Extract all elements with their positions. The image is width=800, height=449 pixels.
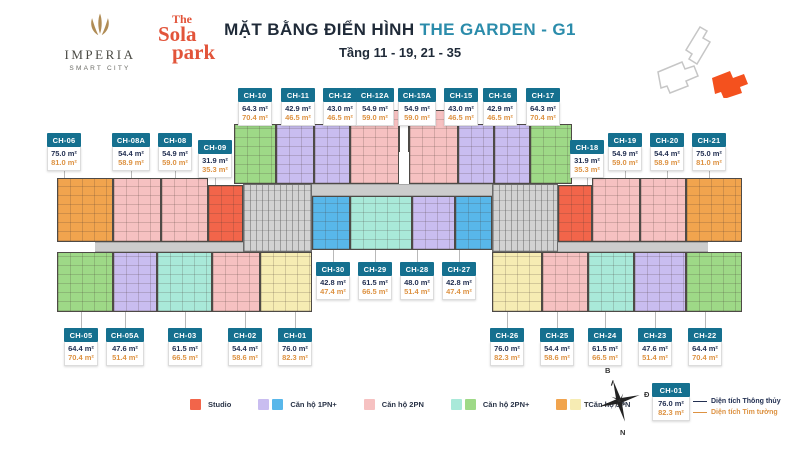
net-label: Diện tích Thông thủy — [711, 398, 781, 405]
compass: B Đ N T — [588, 368, 650, 440]
unit-areas-CH-22: 64.4 m²70.4 m² — [688, 342, 722, 367]
unit-gross-area: 82.3 m² — [491, 353, 523, 363]
unit-areas-CH-09: 31.9 m²35.3 m² — [198, 154, 232, 179]
legend-label: Căn hộ 2PN+ — [483, 400, 529, 409]
unit-code-CH-12A: CH-12A — [356, 88, 394, 102]
unit-code-CH-09: CH-09 — [198, 140, 232, 154]
unit-net-area: 42.8 m² — [317, 278, 349, 288]
unit-net-area: 64.3 m² — [239, 104, 271, 114]
leader-line-CH-03 — [185, 312, 186, 328]
unit-label-CH-30: CH-3042.8 m²47.4 m² — [316, 262, 350, 300]
gross-label: Diện tích Tim tường — [711, 409, 778, 416]
unit-areas-CH-03: 61.5 m²66.5 m² — [168, 342, 202, 367]
unit-net-area: 42.9 m² — [282, 104, 314, 114]
unit-gross-area: 58.6 m² — [229, 353, 261, 363]
unit-gross-area: 46.5 m² — [282, 113, 314, 123]
unit-areas-CH-28: 48.0 m²51.4 m² — [400, 276, 434, 301]
site-building-highlight — [712, 71, 748, 98]
gross-connector-line — [693, 412, 707, 413]
legend-swatch-2pn_pink — [364, 399, 375, 410]
unit-areas-CH-08: 54.9 m²59.0 m² — [158, 147, 192, 172]
leader-line-CH-05 — [81, 312, 82, 328]
unit-areas-CH-08A: 54.4 m²58.9 m² — [112, 147, 150, 172]
unit-CH-29 — [350, 196, 412, 250]
title-plain: MẶT BẰNG ĐIỂN HÌNH — [224, 20, 414, 39]
unit-net-area: 64.4 m² — [65, 344, 97, 354]
unit-areas-CH-26: 76.0 m²82.3 m² — [490, 342, 524, 367]
unit-CH-16 — [494, 124, 530, 184]
unit-gross-area: 59.0 m² — [159, 158, 191, 168]
unit-code-CH-28: CH-28 — [400, 262, 434, 276]
unit-label-CH-23: CH-2347.6 m²51.4 m² — [638, 328, 672, 366]
unit-gross-area: 51.4 m² — [639, 353, 671, 363]
unit-code-CH-29: CH-29 — [358, 262, 392, 276]
unit-areas-CH-24: 61.5 m²66.5 m² — [588, 342, 622, 367]
compass-south-label: N — [620, 428, 625, 437]
unit-CH-28 — [412, 196, 455, 250]
unit-label-CH-17: CH-1764.3 m²70.4 m² — [526, 88, 560, 126]
unit-net-area: 64.3 m² — [527, 104, 559, 114]
legend-swatches — [190, 399, 201, 410]
unit-CH-01 — [260, 252, 312, 312]
unit-code-CH-18: CH-18 — [570, 140, 604, 154]
area-key: CH-01 76.0 m² 82.3 m² Diện tích Thông th… — [652, 383, 781, 421]
legend-swatch-studio — [190, 399, 201, 410]
unit-label-CH-08: CH-0854.9 m²59.0 m² — [158, 133, 192, 171]
unit-areas-CH-23: 47.6 m²51.4 m² — [638, 342, 672, 367]
unit-areas-CH-06: 75.0 m²81.0 m² — [47, 147, 81, 172]
legend-swatch-2pnp_cyan — [451, 399, 462, 410]
unit-code-CH-10: CH-10 — [238, 88, 272, 102]
unit-net-area: 42.9 m² — [484, 104, 516, 114]
unit-gross-area: 70.4 m² — [527, 113, 559, 123]
leader-line-CH-29 — [375, 250, 376, 262]
unit-gross-area: 70.4 m² — [689, 353, 721, 363]
unit-net-area: 54.4 m² — [541, 344, 573, 354]
unit-net-area: 47.6 m² — [639, 344, 671, 354]
unit-gross-area: 35.3 m² — [571, 165, 603, 175]
unit-label-CH-15A: CH-15A54.9 m²59.0 m² — [398, 88, 436, 126]
unit-net-area: 61.5 m² — [169, 344, 201, 354]
unit-code-CH-21: CH-21 — [692, 133, 726, 147]
unit-code-CH-08A: CH-08A — [112, 133, 150, 147]
unit-gross-area: 82.3 m² — [279, 353, 311, 363]
unit-label-CH-09: CH-0931.9 m²35.3 m² — [198, 140, 232, 178]
unit-label-CH-19: CH-1954.9 m²59.0 m² — [608, 133, 642, 171]
unit-CH-10 — [234, 124, 276, 184]
floor-plan-page: IMPERIA SMART CITY The Sola park MẶT BẰN… — [0, 0, 800, 449]
unit-net-area: 54.4 m² — [113, 149, 149, 159]
unit-CH-19 — [592, 178, 640, 242]
legend-swatches — [364, 399, 375, 410]
unit-CH-25 — [542, 252, 588, 312]
unit-code-CH-20: CH-20 — [650, 133, 684, 147]
leader-line-CH-27 — [459, 250, 460, 262]
area-key-net-value: 76.0 m² — [653, 399, 689, 409]
unit-label-CH-05: CH-0564.4 m²70.4 m² — [64, 328, 98, 366]
unit-gross-area: 81.0 m² — [48, 158, 80, 168]
leader-line-CH-28 — [417, 250, 418, 262]
legend-swatch-1pn_blue — [272, 399, 283, 410]
unit-areas-CH-05A: 47.6 m²51.4 m² — [106, 342, 144, 367]
unit-CH-06 — [57, 178, 113, 242]
unit-areas-CH-05: 64.4 m²70.4 m² — [64, 342, 98, 367]
unit-gross-area: 51.4 m² — [107, 353, 143, 363]
legend-item-0: Studio — [190, 399, 231, 410]
unit-code-CH-15: CH-15 — [444, 88, 478, 102]
unit-label-CH-10: CH-1064.3 m²70.4 m² — [238, 88, 272, 126]
unit-code-CH-08: CH-08 — [158, 133, 192, 147]
unit-code-CH-30: CH-30 — [316, 262, 350, 276]
unit-net-area: 76.0 m² — [279, 344, 311, 354]
site-map — [648, 6, 778, 98]
unit-net-area: 54.9 m² — [399, 104, 435, 114]
compass-west-label: T — [584, 400, 589, 409]
unit-code-CH-25: CH-25 — [540, 328, 574, 342]
unit-areas-CH-20: 54.4 m²58.9 m² — [650, 147, 684, 172]
unit-areas-CH-15A: 54.9 m²59.0 m² — [398, 102, 436, 127]
unit-code-CH-17: CH-17 — [526, 88, 560, 102]
imperia-logo-subtext: SMART CITY — [52, 65, 148, 72]
legend-label: Studio — [208, 400, 231, 409]
unit-label-CH-27: CH-2742.8 m²47.4 m² — [442, 262, 476, 300]
unit-gross-area: 59.0 m² — [357, 113, 393, 123]
unit-net-area: 31.9 m² — [199, 156, 231, 166]
leader-line-CH-02 — [245, 312, 246, 328]
unit-net-area: 43.0 m² — [324, 104, 356, 114]
legend-swatches — [556, 399, 581, 410]
unit-label-CH-12: CH-1243.0 m²46.5 m² — [323, 88, 357, 126]
unit-code-CH-27: CH-27 — [442, 262, 476, 276]
legend-swatch-3pn_orange — [556, 399, 567, 410]
legend-swatch-2pnp_green — [465, 399, 476, 410]
unit-CH-11 — [276, 124, 314, 184]
unit-areas-CH-27: 42.8 m²47.4 m² — [442, 276, 476, 301]
area-key-gross-row: Diện tích Tim tường — [690, 407, 781, 418]
unit-label-CH-16: CH-1642.9 m²46.5 m² — [483, 88, 517, 126]
unit-net-area: 75.0 m² — [693, 149, 725, 159]
unit-code-CH-06: CH-06 — [47, 133, 81, 147]
page-subtitle: Tầng 11 - 19, 21 - 35 — [210, 45, 590, 60]
unit-label-CH-29: CH-2961.5 m²66.5 m² — [358, 262, 392, 300]
area-key-net-row: Diện tích Thông thủy — [690, 396, 781, 407]
unit-code-CH-02: CH-02 — [228, 328, 262, 342]
unit-net-area: 54.4 m² — [651, 149, 683, 159]
unit-code-CH-01: CH-01 — [278, 328, 312, 342]
unit-net-area: 42.8 m² — [443, 278, 475, 288]
unit-gross-area: 46.5 m² — [324, 113, 356, 123]
leader-line-CH-05A — [125, 312, 126, 328]
unit-areas-CH-12A: 54.9 m²59.0 m² — [356, 102, 394, 127]
leader-line-CH-26 — [507, 312, 508, 328]
unit-net-area: 76.0 m² — [491, 344, 523, 354]
unit-net-area: 48.0 m² — [401, 278, 433, 288]
legend-swatches — [451, 399, 476, 410]
unit-CH-20 — [640, 178, 686, 242]
unit-gross-area: 66.5 m² — [359, 287, 391, 297]
unit-gross-area: 59.0 m² — [609, 158, 641, 168]
leader-line-CH-30 — [333, 250, 334, 262]
unit-areas-CH-17: 64.3 m²70.4 m² — [526, 102, 560, 127]
legend-item-2: Căn hộ 2PN — [364, 399, 424, 410]
compass-rose-icon — [591, 373, 648, 430]
legend-swatch-1pn_purple — [258, 399, 269, 410]
imperia-logo: IMPERIA SMART CITY — [52, 12, 148, 72]
leader-line-CH-01 — [295, 312, 296, 328]
leader-line-CH-23 — [655, 312, 656, 328]
unit-gross-area: 58.9 m² — [113, 158, 149, 168]
unit-areas-CH-25: 54.4 m²58.6 m² — [540, 342, 574, 367]
unit-gross-area: 59.0 m² — [399, 113, 435, 123]
legend-swatch-3pn_yellow — [570, 399, 581, 410]
unit-gross-area: 70.4 m² — [239, 113, 271, 123]
legend-label: Căn hộ 1PN+ — [290, 400, 336, 409]
unit-areas-CH-16: 42.9 m²46.5 m² — [483, 102, 517, 127]
leader-line-CH-24 — [605, 312, 606, 328]
legend-item-3: Căn hộ 2PN+ — [451, 399, 529, 410]
unit-CH-22 — [686, 252, 742, 312]
unit-label-CH-21: CH-2175.0 m²81.0 m² — [692, 133, 726, 171]
unit-areas-CH-10: 64.3 m²70.4 m² — [238, 102, 272, 127]
stair-elevator-core — [492, 184, 558, 252]
net-connector-line — [693, 401, 707, 402]
unit-gross-area: 66.5 m² — [589, 353, 621, 363]
unit-label-CH-28: CH-2848.0 m²51.4 m² — [400, 262, 434, 300]
unit-code-CH-23: CH-23 — [638, 328, 672, 342]
unit-CH-23 — [634, 252, 686, 312]
unit-areas-CH-18: 31.9 m²35.3 m² — [570, 154, 604, 179]
unit-net-area: 54.9 m² — [357, 104, 393, 114]
unit-code-CH-03: CH-03 — [168, 328, 202, 342]
unit-gross-area: 58.6 m² — [541, 353, 573, 363]
unit-net-area: 61.5 m² — [589, 344, 621, 354]
area-key-unit-code: CH-01 — [652, 383, 690, 397]
imperia-tulip-icon — [83, 12, 117, 40]
unit-CH-24 — [588, 252, 634, 312]
unit-label-CH-01: CH-0176.0 m²82.3 m² — [278, 328, 312, 366]
title-project: THE GARDEN - G1 — [420, 20, 576, 39]
area-key-sample-label: CH-01 76.0 m² 82.3 m² — [652, 383, 690, 421]
page-title-block: MẶT BẰNG ĐIỂN HÌNH THE GARDEN - G1 Tầng … — [210, 20, 590, 60]
unit-CH-26 — [492, 252, 542, 312]
unit-code-CH-11: CH-11 — [281, 88, 315, 102]
unit-code-CH-24: CH-24 — [588, 328, 622, 342]
legend-swatches — [258, 399, 283, 410]
unit-label-CH-20: CH-2054.4 m²58.9 m² — [650, 133, 684, 171]
unit-type-legend: StudioCăn hộ 1PN+Căn hộ 2PNCăn hộ 2PN+Că… — [190, 399, 630, 410]
unit-gross-area: 66.5 m² — [169, 353, 201, 363]
compass-north-label: B — [605, 366, 610, 375]
unit-CH-02 — [212, 252, 260, 312]
unit-label-CH-12A: CH-12A54.9 m²59.0 m² — [356, 88, 394, 126]
unit-CH-21 — [686, 178, 742, 242]
unit-areas-CH-21: 75.0 m²81.0 m² — [692, 147, 726, 172]
legend-label: Căn hộ 2PN — [382, 400, 424, 409]
unit-code-CH-05A: CH-05A — [106, 328, 144, 342]
unit-gross-area: 47.4 m² — [317, 287, 349, 297]
unit-code-CH-05: CH-05 — [64, 328, 98, 342]
unit-label-CH-26: CH-2676.0 m²82.3 m² — [490, 328, 524, 366]
site-building-outline-2 — [658, 62, 698, 93]
unit-gross-area: 51.4 m² — [401, 287, 433, 297]
unit-net-area: 31.9 m² — [571, 156, 603, 166]
sola-park-logo: The Sola park — [158, 14, 215, 61]
unit-CH-18 — [558, 185, 592, 242]
unit-CH-09 — [208, 185, 243, 242]
unit-label-CH-15: CH-1543.0 m²46.5 m² — [444, 88, 478, 126]
unit-label-CH-05A: CH-05A47.6 m²51.4 m² — [106, 328, 144, 366]
unit-CH-30 — [312, 196, 350, 250]
unit-CH-03 — [157, 252, 212, 312]
unit-code-CH-26: CH-26 — [490, 328, 524, 342]
unit-CH-27 — [455, 196, 492, 250]
unit-areas-CH-29: 61.5 m²66.5 m² — [358, 276, 392, 301]
unit-CH-17 — [530, 124, 572, 184]
unit-gross-area: 81.0 m² — [693, 158, 725, 168]
unit-gross-area: 58.9 m² — [651, 158, 683, 168]
unit-areas-CH-19: 54.9 m²59.0 m² — [608, 147, 642, 172]
unit-gross-area: 70.4 m² — [65, 353, 97, 363]
unit-label-CH-11: CH-1142.9 m²46.5 m² — [281, 88, 315, 126]
unit-CH-08A — [113, 178, 161, 242]
corridor — [95, 242, 243, 252]
unit-net-area: 61.5 m² — [359, 278, 391, 288]
unit-areas-CH-02: 54.4 m²58.6 m² — [228, 342, 262, 367]
unit-label-CH-24: CH-2461.5 m²66.5 m² — [588, 328, 622, 366]
unit-code-CH-15A: CH-15A — [398, 88, 436, 102]
unit-areas-CH-30: 42.8 m²47.4 m² — [316, 276, 350, 301]
unit-CH-08 — [161, 178, 208, 242]
unit-areas-CH-01: 76.0 m²82.3 m² — [278, 342, 312, 367]
unit-label-CH-08A: CH-08A54.4 m²58.9 m² — [112, 133, 150, 171]
stair-elevator-core — [243, 184, 312, 252]
unit-label-CH-18: CH-1831.9 m²35.3 m² — [570, 140, 604, 178]
unit-net-area: 54.9 m² — [609, 149, 641, 159]
unit-areas-CH-11: 42.9 m²46.5 m² — [281, 102, 315, 127]
leader-line-CH-25 — [557, 312, 558, 328]
unit-areas-CH-12: 43.0 m²46.5 m² — [323, 102, 357, 127]
leader-line-CH-22 — [705, 312, 706, 328]
unit-code-CH-19: CH-19 — [608, 133, 642, 147]
unit-label-CH-06: CH-0675.0 m²81.0 m² — [47, 133, 81, 171]
corridor — [558, 242, 708, 252]
unit-net-area: 54.4 m² — [229, 344, 261, 354]
unit-areas-CH-15: 43.0 m²46.5 m² — [444, 102, 478, 127]
unit-code-CH-16: CH-16 — [483, 88, 517, 102]
unit-CH-05A — [113, 252, 157, 312]
imperia-logo-text: IMPERIA — [52, 47, 148, 63]
unit-CH-12 — [314, 124, 350, 184]
unit-label-CH-22: CH-2264.4 m²70.4 m² — [688, 328, 722, 366]
unit-gross-area: 47.4 m² — [443, 287, 475, 297]
site-building-outline-1 — [686, 27, 710, 64]
unit-net-area: 43.0 m² — [445, 104, 477, 114]
area-key-gross-value: 82.3 m² — [653, 408, 689, 418]
unit-code-CH-12: CH-12 — [323, 88, 357, 102]
unit-net-area: 75.0 m² — [48, 149, 80, 159]
unit-label-CH-02: CH-0254.4 m²58.6 m² — [228, 328, 262, 366]
unit-net-area: 64.4 m² — [689, 344, 721, 354]
unit-CH-05 — [57, 252, 113, 312]
unit-net-area: 47.6 m² — [107, 344, 143, 354]
unit-label-CH-03: CH-0361.5 m²66.5 m² — [168, 328, 202, 366]
corridor — [312, 184, 492, 196]
compass-east-label: Đ — [644, 390, 649, 399]
page-title: MẶT BẰNG ĐIỂN HÌNH THE GARDEN - G1 — [210, 20, 590, 40]
unit-code-CH-22: CH-22 — [688, 328, 722, 342]
sola-logo-line3: park — [172, 43, 215, 61]
unit-gross-area: 35.3 m² — [199, 165, 231, 175]
legend-item-1: Căn hộ 1PN+ — [258, 399, 336, 410]
unit-CH-15 — [458, 124, 494, 184]
unit-gross-area: 46.5 m² — [445, 113, 477, 123]
unit-net-area: 54.9 m² — [159, 149, 191, 159]
unit-label-CH-25: CH-2554.4 m²58.6 m² — [540, 328, 574, 366]
unit-gross-area: 46.5 m² — [484, 113, 516, 123]
